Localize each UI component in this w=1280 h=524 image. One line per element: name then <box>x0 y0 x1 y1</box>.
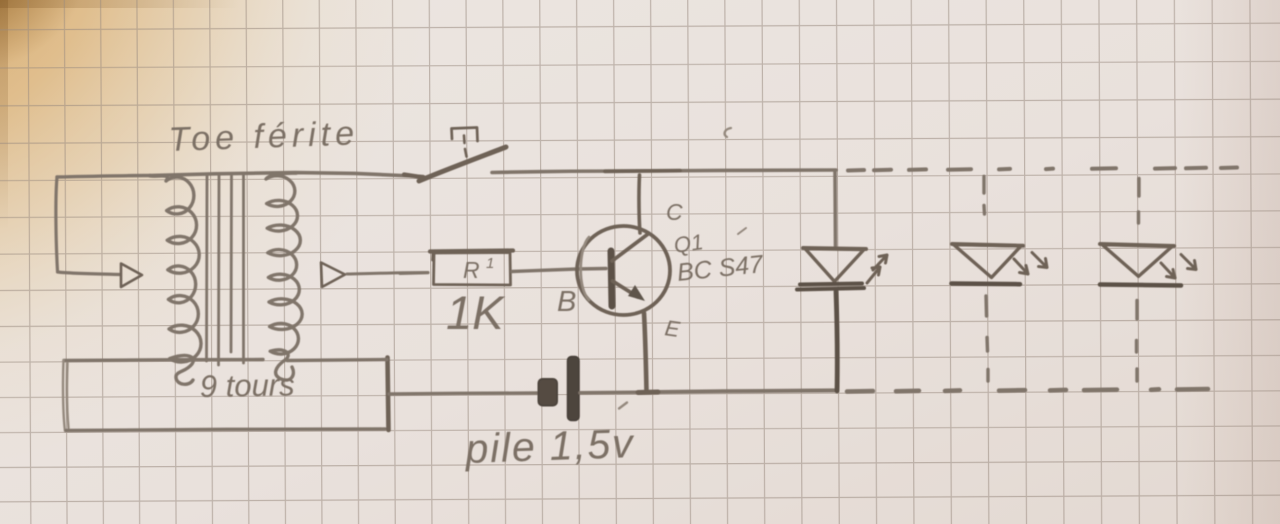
svg-text:R: R <box>463 257 480 283</box>
svg-text:1K: 1K <box>446 286 506 339</box>
svg-text:C: C <box>666 199 683 225</box>
svg-text:Q1: Q1 <box>672 229 705 258</box>
svg-text:B: B <box>557 286 576 318</box>
svg-text:1: 1 <box>486 255 494 272</box>
svg-text:9 tours: 9 tours <box>200 367 295 404</box>
svg-text:Toe férite: Toe férite <box>168 114 360 159</box>
svg-text:pile 1,5v: pile 1,5v <box>463 420 636 472</box>
